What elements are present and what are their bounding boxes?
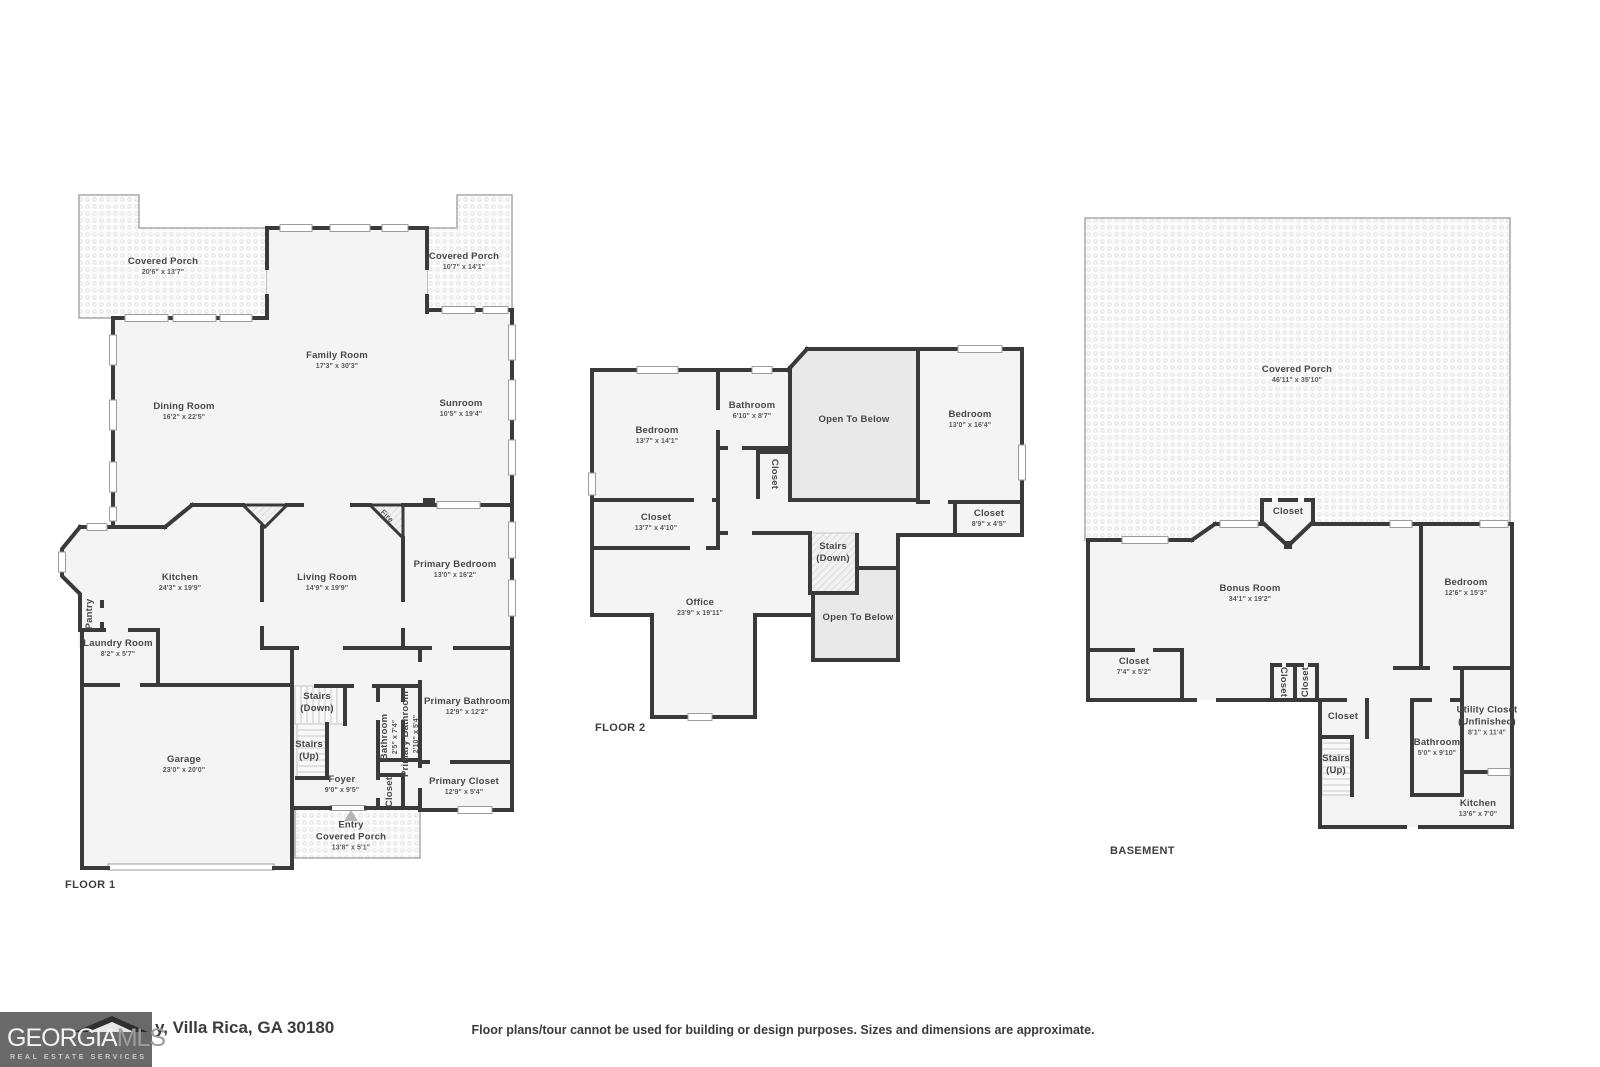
room-label-kitchen: Kitchen24'3" x 19'9" [159,572,201,594]
room-label-family-room: Family Room17'3" x 30'3" [306,350,368,372]
room-label-stairs-up-basement: Stairs(Up) [1322,753,1350,777]
room-label-open-to-below-upper: Open To Below [818,414,889,426]
room-label-bathroom-f1: Bathroom2'5" x 7'4" [379,714,401,760]
room-label-closet-left-f2: Closet13'7" x 4'10" [635,512,677,534]
room-label-open-to-below-lower: Open To Below [822,612,893,624]
logo-tagline: REAL ESTATE SERVICES [10,1054,147,1061]
room-label-primary-closet: Primary Closet12'9" x 5'4" [429,776,499,798]
logo-wordmark: GEORGIAMLS [7,1026,165,1051]
floor2-title: FLOOR 2 [595,722,645,734]
room-label-closet-bay: Closet [1273,506,1303,518]
floor-plans-canvas [0,0,1600,1067]
room-label-office: Office23'9" x 19'11" [677,597,723,619]
room-label-basement-porch: Covered Porch46'11" x 35'10" [1262,364,1332,386]
room-label-closet-right-f2: Closet8'9" x 4'5" [972,508,1006,530]
floor1-plan [59,195,516,870]
basement-plan [1085,218,1512,827]
room-label-primary-bathroom-small: Primary Bathroom2'10" x 5'4" [400,691,422,777]
room-label-pantry: Pantry [84,599,96,630]
room-label-closet-hall-basement: Closet [1328,711,1358,723]
room-label-sunroom: Sunroom10'5" x 19'4" [439,398,482,420]
room-label-closet-a: Closet [1277,667,1289,697]
room-label-covered-porch-left: Covered Porch20'6" x 13'7" [128,256,198,278]
room-label-primary-bathroom: Primary Bathroom12'9" x 12'2" [424,696,510,718]
room-label-closet-hall-f2: Closet [768,459,780,489]
room-label-utility-closet: Utility Closet(Unfinished)8'1" x 11'4" [1457,704,1518,738]
property-address: y, Villa Rica, GA 30180 [155,1018,334,1038]
room-label-bonus-room: Bonus Room34'1" x 19'2" [1219,583,1280,605]
room-label-bathroom-f2: Bathroom6'10" x 8'7" [729,400,775,422]
floor1-title: FLOOR 1 [65,879,115,891]
basement-title: BASEMENT [1110,845,1175,857]
disclaimer-text: Floor plans/tour cannot be used for buil… [471,1023,1094,1037]
room-label-covered-porch-right: Covered Porch10'7" x 14'1" [429,251,499,273]
room-label-primary-bedroom: Primary Bedroom13'0" x 16'2" [414,559,497,581]
room-label-dining-room: Dining Room16'2" x 22'5" [153,401,214,423]
room-label-laundry-room: Laundry Room8'2" x 5'7" [83,638,152,660]
room-label-closet-foyer: Closet [384,777,396,807]
room-label-garage: Garage23'0" x 20'0" [163,754,205,776]
room-label-bedroom-left-f2: Bedroom13'7" x 14'1" [635,425,678,447]
room-label-closet-b: Closet [1300,667,1312,697]
georgia-mls-logo: GEORGIAMLS REAL ESTATE SERVICES [0,1012,152,1067]
room-label-bedroom-basement: Bedroom12'6" x 15'3" [1444,577,1487,599]
floor-plan-page: Covered Porch20'6" x 13'7" Covered Porch… [0,0,1600,1067]
room-label-stairs-down-f1: Stairs(Down) [300,691,333,715]
room-label-closet-left-basement: Closet7'4" x 5'2" [1117,656,1151,678]
room-label-entry-porch: EntryCovered Porch13'8" x 5'1" [316,819,386,853]
room-label-stairs-down-f2: Stairs(Down) [816,541,849,565]
room-label-stairs-up-f1: Stairs(Up) [295,739,323,763]
room-label-kitchen-basement: Kitchen13'6" x 7'0" [1459,798,1497,820]
room-label-living-room: Living Room14'9" x 19'9" [297,572,357,594]
room-label-bedroom-right-f2: Bedroom13'0" x 16'4" [948,409,991,431]
room-label-bathroom-basement: Bathroom5'0" x 9'10" [1414,737,1460,759]
room-label-foyer: Foyer9'0" x 9'5" [325,774,359,796]
